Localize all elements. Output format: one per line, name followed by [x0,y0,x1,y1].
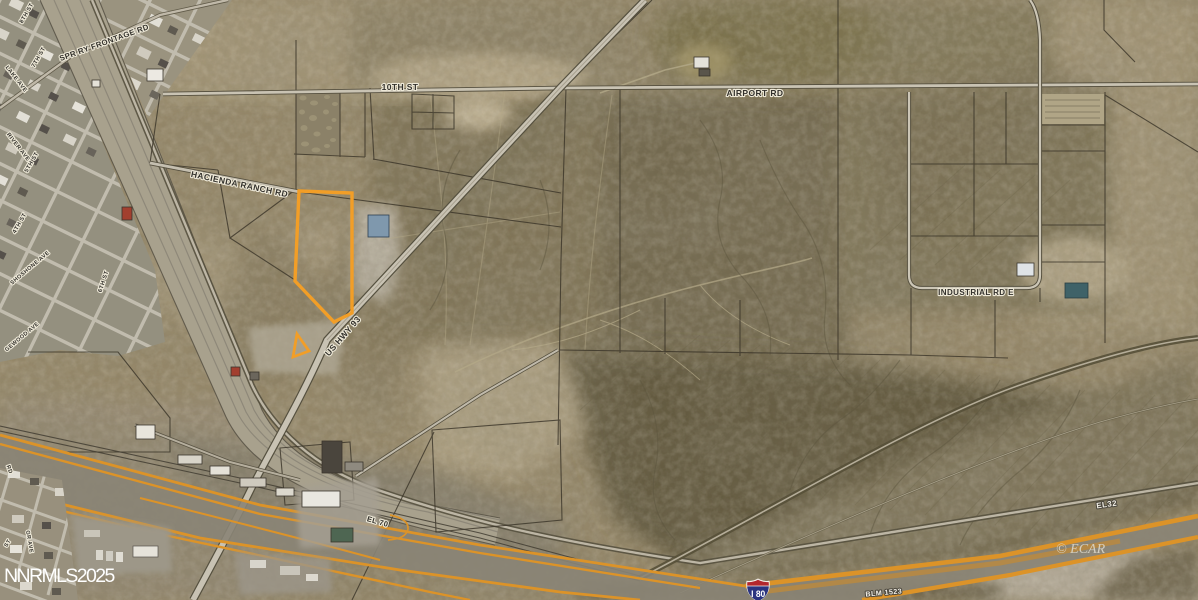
svg-text:INDUSTRIAL RD E: INDUSTRIAL RD E [938,288,1014,297]
svg-text:I 80: I 80 [751,588,765,599]
svg-text:NNRMLS2025: NNRMLS2025 [4,565,115,587]
svg-text:© ECAR: © ECAR [1056,542,1106,557]
svg-text:AIRPORT RD: AIRPORT RD [727,88,784,98]
svg-text:10TH ST: 10TH ST [382,82,419,92]
